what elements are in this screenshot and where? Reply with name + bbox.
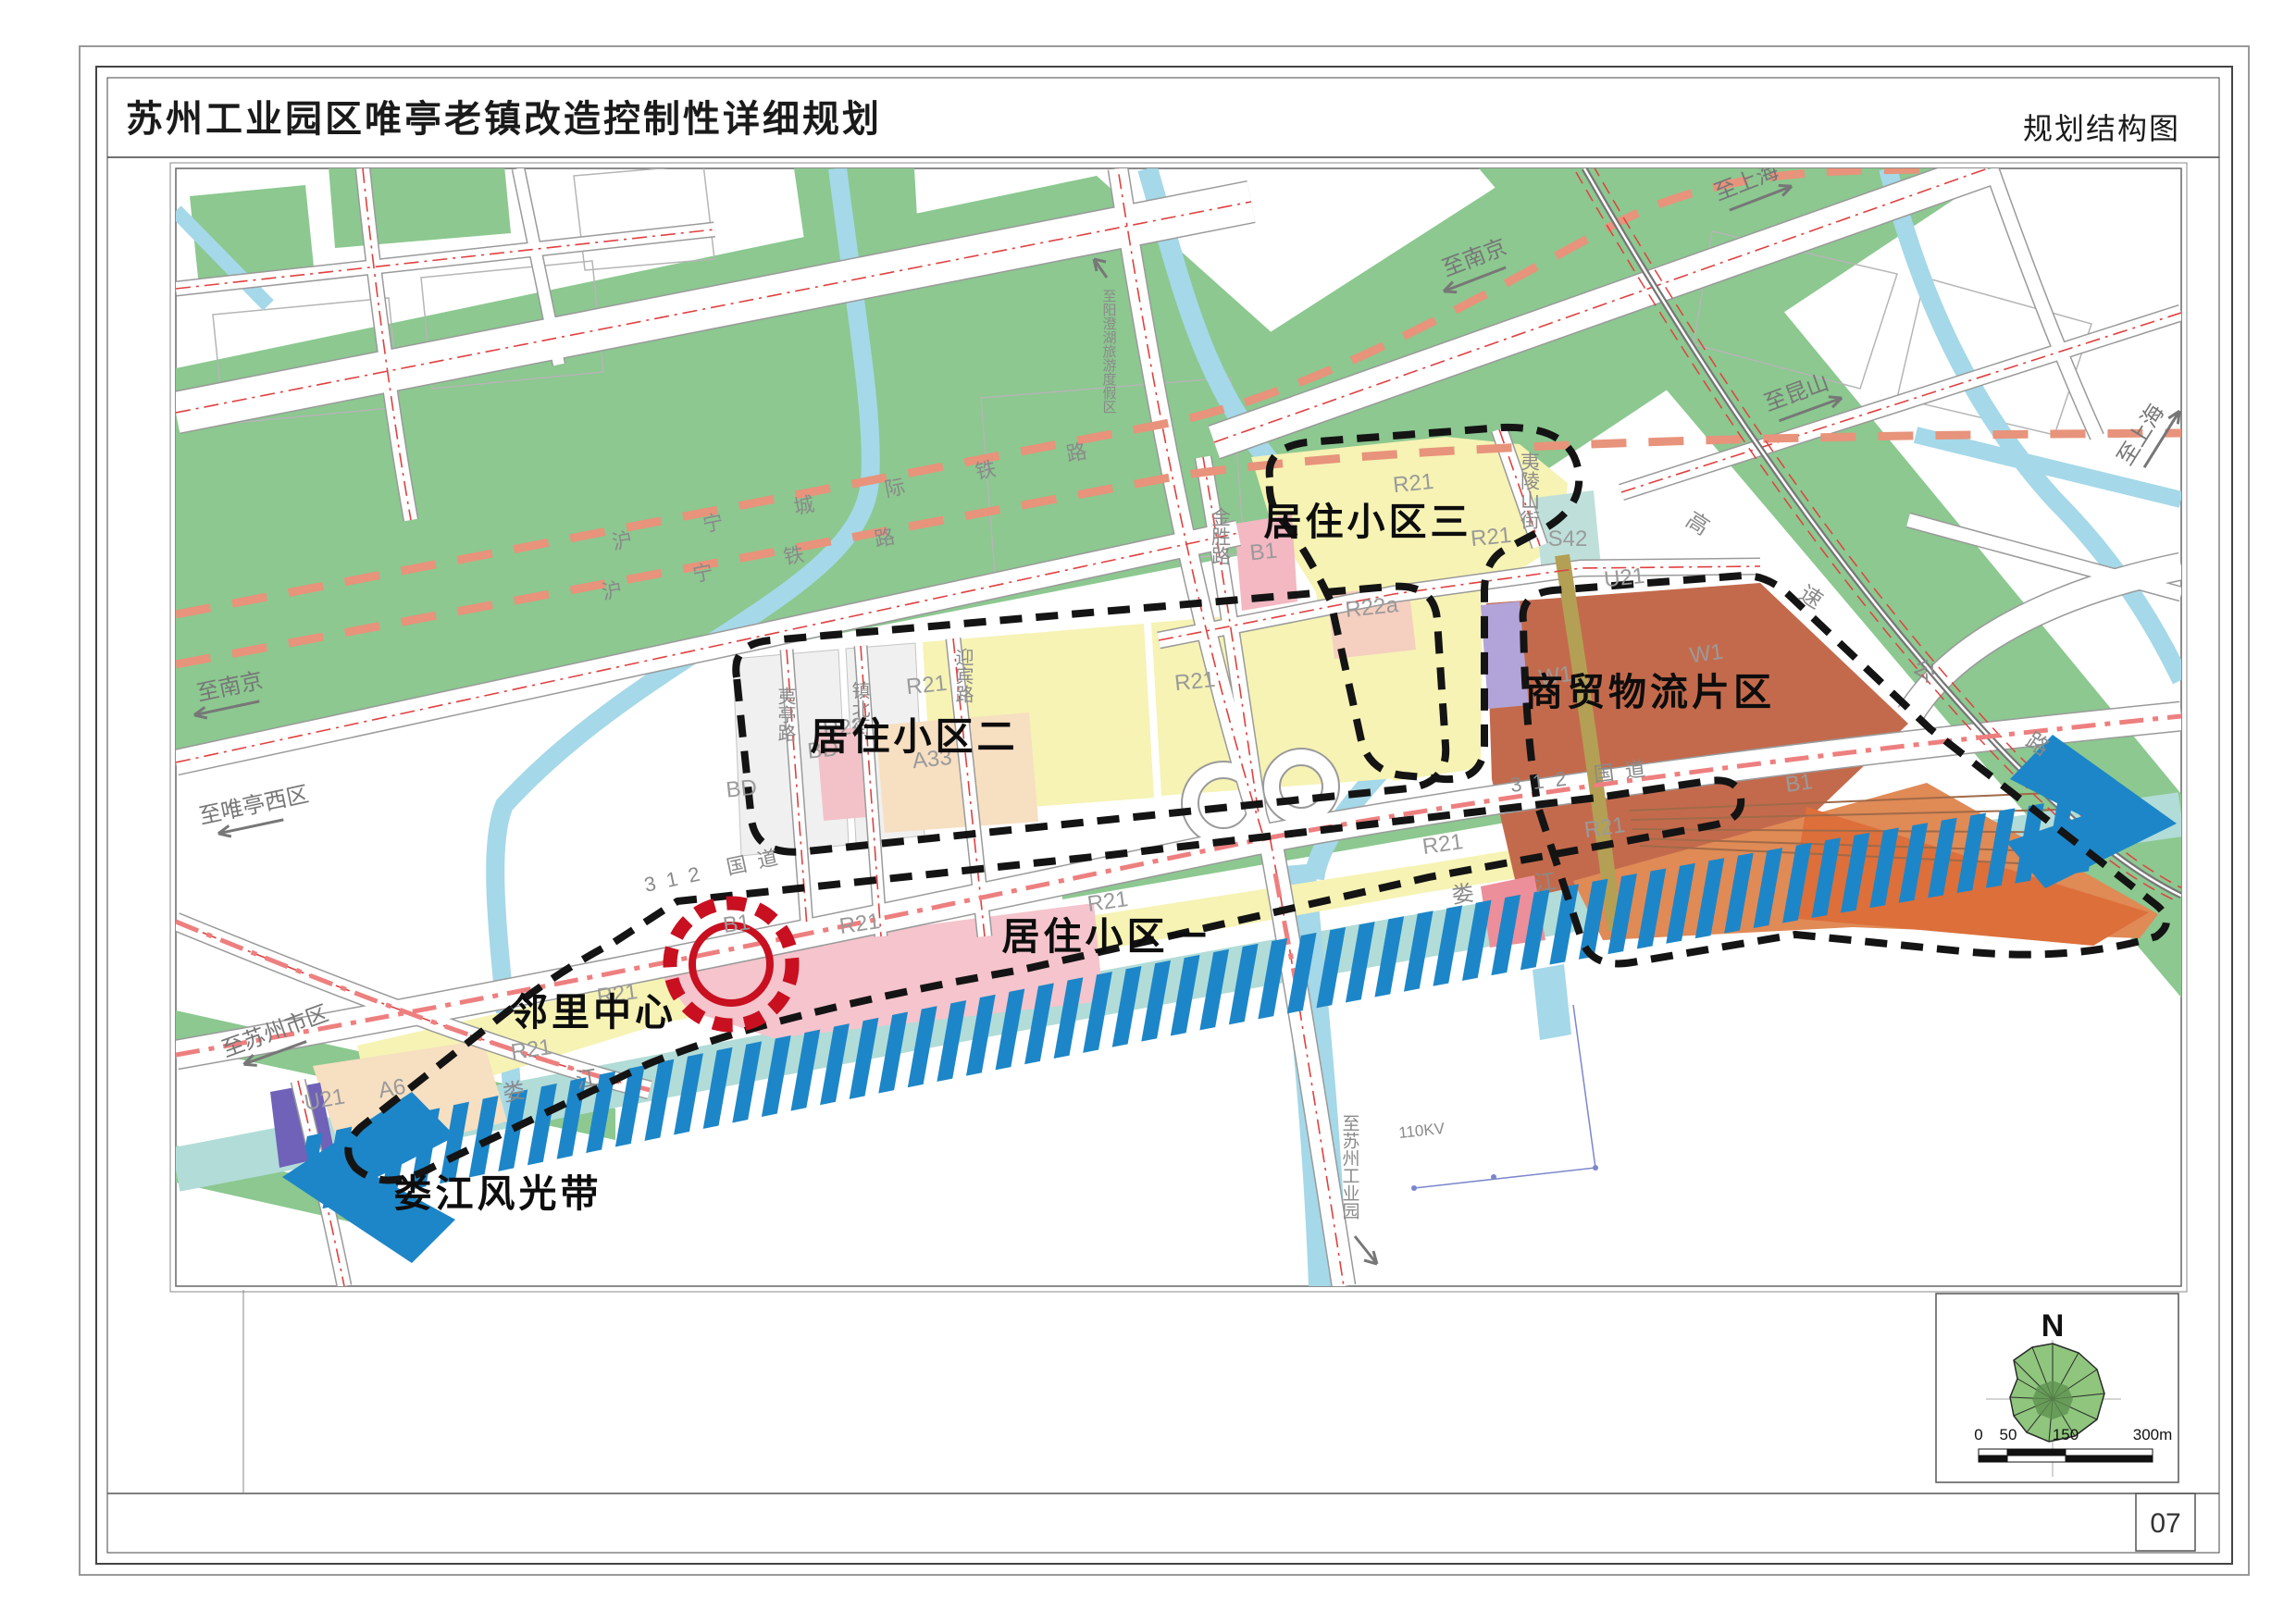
page-number: 07	[2150, 1508, 2180, 1539]
parcel-code: B1	[722, 910, 752, 938]
parcel-code: R21	[905, 671, 949, 700]
parcel-code: W1	[1688, 639, 1724, 669]
parcel-code: R21	[1173, 667, 1217, 696]
district-label: 居住小区二	[811, 715, 1019, 758]
district-label: 娄江风光带	[394, 1172, 602, 1215]
svg-text:至苏州工业园: 至苏州工业园	[1340, 1114, 1360, 1220]
map-title: 规划结构图	[2023, 112, 2180, 145]
road-label: 夷亭路	[775, 687, 796, 742]
road-label: 金胜路	[1210, 507, 1232, 565]
parcel-code: B1	[1784, 769, 1815, 798]
svg-text:至阳澄湖旅游度假区: 至阳澄湖旅游度假区	[1101, 289, 1117, 414]
north-label: N	[2042, 1308, 2065, 1344]
district-label: 商贸物流片区	[1525, 671, 1775, 713]
plan-sheet: 苏州工业园区唯亭老镇改造控制性详细规划 规划结构图 07	[0, 0, 2296, 1623]
road-label: 迎宾路	[952, 648, 974, 703]
scale-300m: 300m	[2133, 1426, 2173, 1443]
parcel-code: BD	[725, 774, 758, 802]
district-label: 邻里中心	[510, 991, 676, 1034]
scale-150: 150	[2053, 1426, 2079, 1443]
parcel-code: R21	[1392, 469, 1435, 498]
parcel-code: U21	[1603, 564, 1646, 592]
road-label: 夷陵山街	[1519, 452, 1541, 529]
district-label: 居住小区三	[1264, 501, 1472, 543]
scale-0: 0	[1974, 1426, 1982, 1443]
page-title: 苏州工业园区唯亭老镇改造控制性详细规划	[126, 99, 882, 140]
district-label: 居住小区一	[1002, 915, 1210, 958]
parcel-code: A6	[377, 1074, 408, 1104]
planning-map: 苏州工业园区唯亭老镇改造控制性详细规划 规划结构图 07	[0, 0, 2296, 1623]
scale-50: 50	[2000, 1426, 2017, 1443]
parcel-code: S42	[1548, 527, 1588, 551]
parcel-code: R21	[1470, 523, 1513, 551]
